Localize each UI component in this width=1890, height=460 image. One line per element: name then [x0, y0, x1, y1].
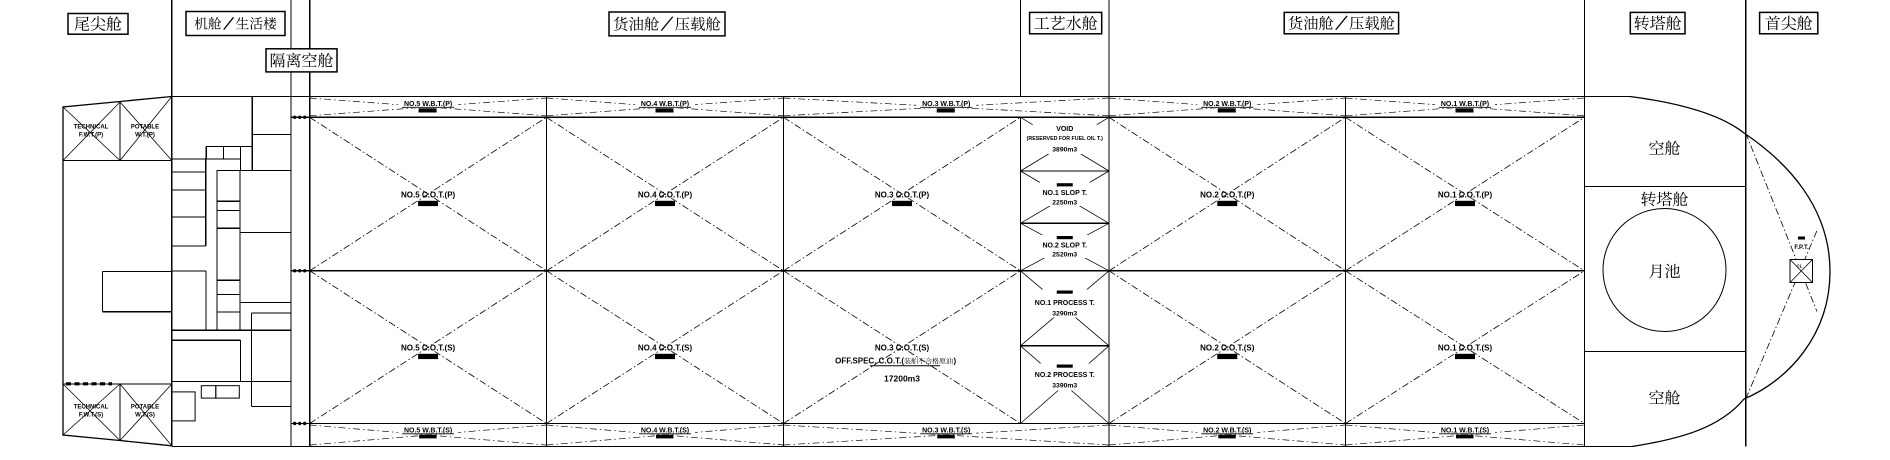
svg-text:CL: CL	[1797, 264, 1803, 269]
svg-text:POTABLE: POTABLE	[131, 125, 159, 131]
svg-text:NO.2 W.B.T.(P): NO.2 W.B.T.(P)	[1203, 101, 1251, 108]
svg-text:NO.3 W.B.T.(P): NO.3 W.B.T.(P)	[922, 101, 970, 108]
svg-text:NO.5 C.O.T.(P): NO.5 C.O.T.(P)	[401, 191, 456, 200]
svg-text:NO.2 C.O.T.(P): NO.2 C.O.T.(P)	[1200, 191, 1255, 200]
svg-text:VOID: VOID	[1056, 126, 1073, 133]
svg-text:NO.4 C.O.T.(P): NO.4 C.O.T.(P)	[638, 191, 693, 200]
svg-text:2250m3: 2250m3	[1052, 200, 1077, 207]
svg-text:(RESERVED FOR FUEL OIL T.): (RESERVED FOR FUEL OIL T.)	[1027, 136, 1103, 142]
svg-text:NO.1 W.B.T.(S): NO.1 W.B.T.(S)	[1441, 427, 1489, 434]
svg-text:NO.5 W.B.T.(S): NO.5 W.B.T.(S)	[404, 427, 452, 434]
svg-text:3890m3: 3890m3	[1052, 147, 1077, 154]
svg-text:NO.1 SLOP T.: NO.1 SLOP T.	[1042, 190, 1087, 197]
svg-text:NO.3 W.B.T.(S): NO.3 W.B.T.(S)	[922, 427, 970, 434]
svg-text:2520m3: 2520m3	[1052, 252, 1077, 259]
svg-text:NO.2 W.B.T.(S): NO.2 W.B.T.(S)	[1203, 427, 1251, 434]
svg-text:TECHNICAL: TECHNICAL	[74, 125, 109, 131]
svg-text:NO.1 W.B.T.(P): NO.1 W.B.T.(P)	[1441, 101, 1489, 108]
svg-text:NO.3 C.O.T.(P): NO.3 C.O.T.(P)	[875, 191, 930, 200]
svg-text:NO.4 W.B.T.(P): NO.4 W.B.T.(P)	[641, 101, 689, 108]
svg-text:TECHNICAL: TECHNICAL	[74, 405, 109, 411]
svg-text:NO.4 W.B.T.(S): NO.4 W.B.T.(S)	[641, 427, 689, 434]
svg-text:NO.2 SLOP T.: NO.2 SLOP T.	[1042, 243, 1087, 250]
svg-text:OFF.SPEC. C.O.T.(: OFF.SPEC. C.O.T.(	[835, 357, 904, 366]
svg-text:NO.5 W.B.T.(P): NO.5 W.B.T.(P)	[404, 101, 452, 108]
svg-text:NO.1 PROCESS T.: NO.1 PROCESS T.	[1035, 300, 1095, 307]
svg-text:): )	[954, 357, 957, 366]
svg-text:W.T.(S): W.T.(S)	[135, 413, 155, 419]
svg-text:NO.2 PROCESS T.: NO.2 PROCESS T.	[1035, 372, 1095, 379]
svg-text:NO.4 C.O.T.(S): NO.4 C.O.T.(S)	[638, 344, 693, 353]
svg-text:F.P.T.: F.P.T.	[1794, 245, 1809, 251]
svg-text:NO.5 C.O.T.(S): NO.5 C.O.T.(S)	[401, 344, 456, 353]
svg-text:NO.3 C.O.T.(S): NO.3 C.O.T.(S)	[875, 344, 930, 353]
svg-text:NO.2 C.O.T.(S): NO.2 C.O.T.(S)	[1200, 344, 1255, 353]
svg-text:NO.1 C.O.T.(P): NO.1 C.O.T.(P)	[1438, 191, 1493, 200]
svg-text:F.W.T.(P): F.W.T.(P)	[79, 133, 103, 139]
svg-text:W.T.(P): W.T.(P)	[135, 133, 155, 139]
svg-text:POTABLE: POTABLE	[131, 405, 159, 411]
svg-text:F.W.T.(S): F.W.T.(S)	[79, 413, 103, 419]
svg-text:NO.1 C.O.T.(S): NO.1 C.O.T.(S)	[1438, 344, 1493, 353]
svg-text:3290m3: 3290m3	[1052, 311, 1077, 318]
svg-text:3390m3: 3390m3	[1052, 383, 1077, 390]
svg-text:17200m3: 17200m3	[884, 374, 920, 384]
